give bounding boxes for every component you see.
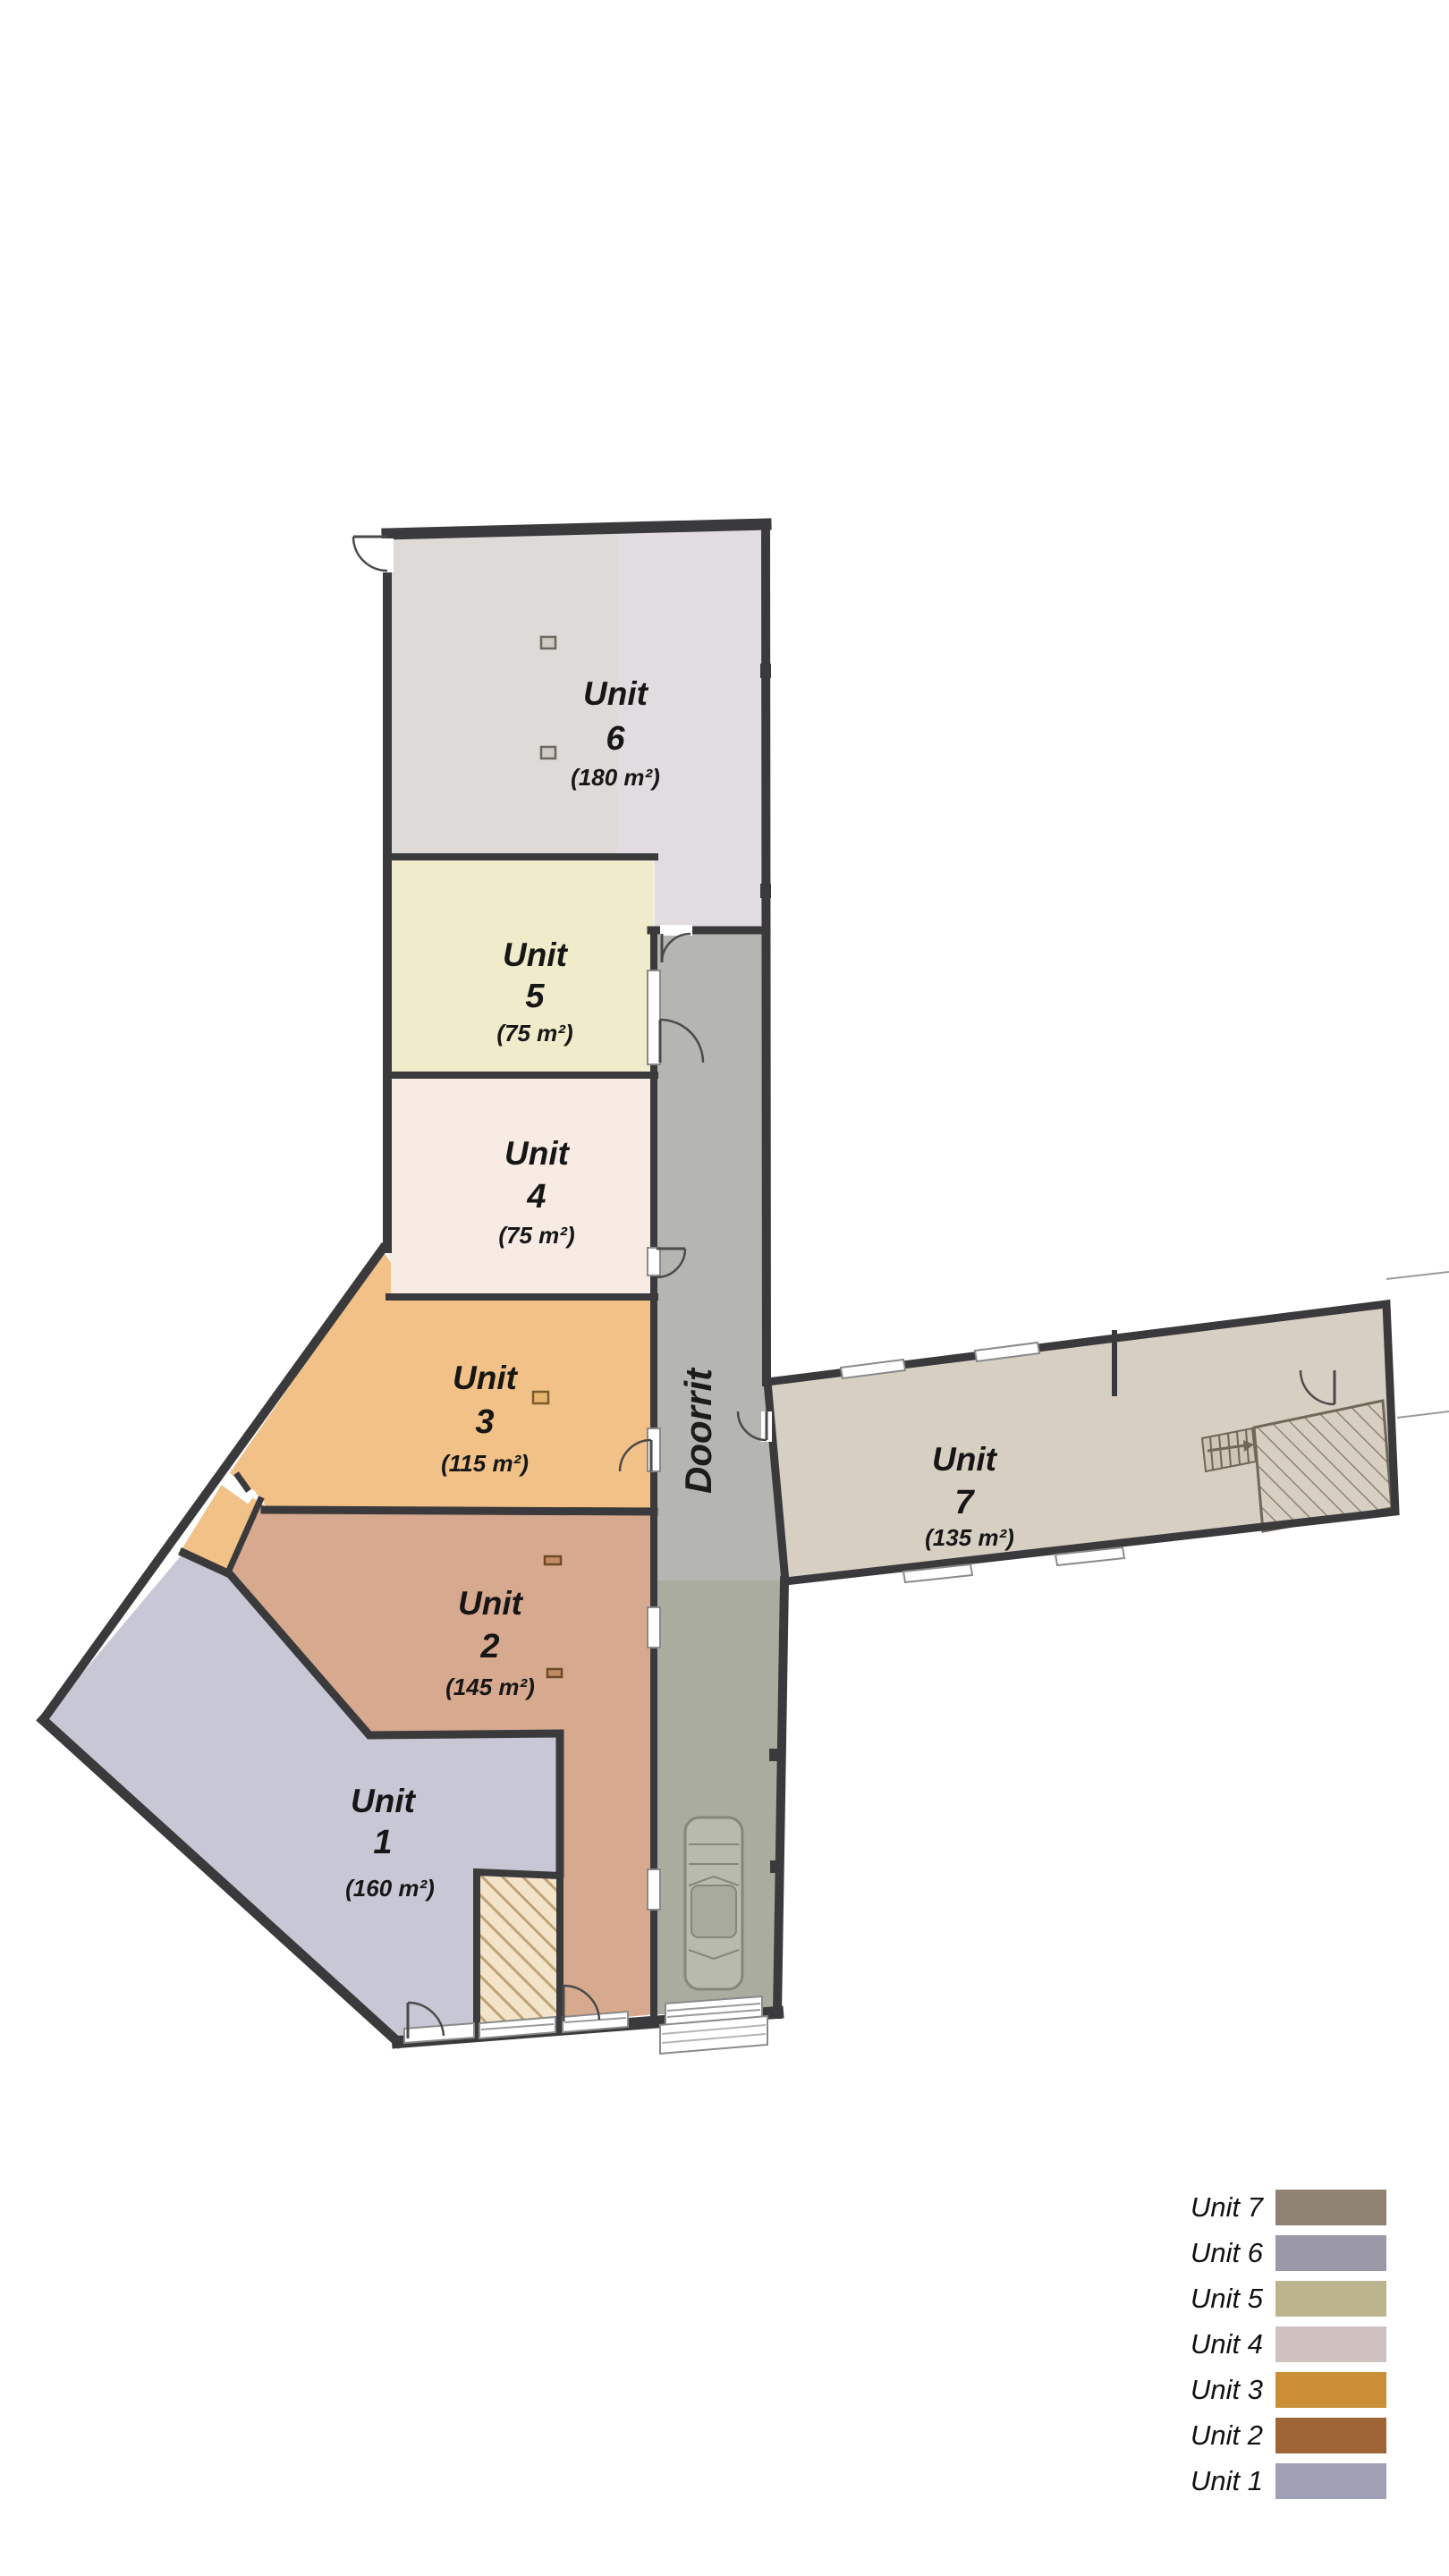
legend-row-unit6: Unit 6 (1055, 2235, 1386, 2271)
legend-label-unit3: Unit 3 (1191, 2374, 1263, 2406)
legend-swatch-unit1 (1275, 2463, 1386, 2499)
legend-row-unit1: Unit 1 (1055, 2463, 1386, 2499)
svg-text:Unit: Unit (351, 1783, 417, 1819)
legend-swatch-unit4 (1275, 2326, 1386, 2362)
svg-text:Unit: Unit (583, 675, 649, 712)
svg-text:4: 4 (526, 1178, 546, 1216)
legend-label-unit7: Unit 7 (1191, 2191, 1263, 2224)
legend-label-unit1: Unit 1 (1191, 2465, 1263, 2497)
legend-row-unit7: Unit 7 (1055, 2190, 1386, 2225)
svg-text:Unit: Unit (503, 936, 569, 973)
unit-4-room (389, 1075, 653, 1297)
legend-label-unit4: Unit 4 (1191, 2328, 1263, 2360)
legend-swatch-unit3 (1275, 2372, 1386, 2408)
legend: Unit 7 Unit 6 Unit 5 Unit 4 Unit 3 Unit … (1055, 2190, 1386, 2499)
legend-row-unit5: Unit 5 (1055, 2281, 1386, 2317)
hatch-area-unit1 (477, 1872, 560, 2032)
legend-row-unit3: Unit 3 (1055, 2372, 1386, 2408)
svg-text:3: 3 (475, 1403, 494, 1441)
svg-text:Unit: Unit (504, 1135, 571, 1172)
floorplan-page: Unit 6 (180 m²) Unit 5 (75 m²) Unit 4 (7… (0, 0, 1449, 2576)
svg-text:1: 1 (373, 1824, 392, 1861)
svg-text:(75 m²): (75 m²) (498, 1222, 574, 1249)
legend-label-unit6: Unit 6 (1191, 2237, 1263, 2269)
svg-text:2: 2 (479, 1628, 499, 1665)
legend-label-unit5: Unit 5 (1191, 2283, 1263, 2315)
svg-text:7: 7 (954, 1484, 975, 1521)
svg-text:(145 m²): (145 m²) (445, 1674, 535, 1700)
svg-text:(180 m²): (180 m²) (571, 764, 660, 791)
svg-text:(115 m²): (115 m²) (441, 1450, 529, 1477)
svg-text:(135 m²): (135 m²) (925, 1524, 1014, 1551)
legend-swatch-unit7 (1275, 2190, 1386, 2225)
legend-swatch-unit2 (1275, 2418, 1386, 2453)
legend-label-unit2: Unit 2 (1191, 2419, 1263, 2452)
legend-swatch-unit5 (1275, 2281, 1386, 2317)
svg-text:6: 6 (606, 720, 625, 758)
svg-text:(160 m²): (160 m²) (345, 1875, 435, 1902)
legend-row-unit2: Unit 2 (1055, 2418, 1386, 2453)
legend-row-unit4: Unit 4 (1055, 2326, 1386, 2362)
svg-text:Unit: Unit (932, 1441, 998, 1478)
car-icon (685, 1818, 742, 1989)
legend-swatch-unit6 (1275, 2235, 1386, 2271)
svg-text:Unit: Unit (458, 1585, 524, 1622)
corridor-label: Doorrit (677, 1367, 719, 1494)
svg-text:Unit: Unit (453, 1360, 519, 1396)
svg-text:5: 5 (525, 978, 545, 1015)
svg-text:(75 m²): (75 m²) (496, 1020, 572, 1046)
survey-lines (1386, 1272, 1449, 1418)
